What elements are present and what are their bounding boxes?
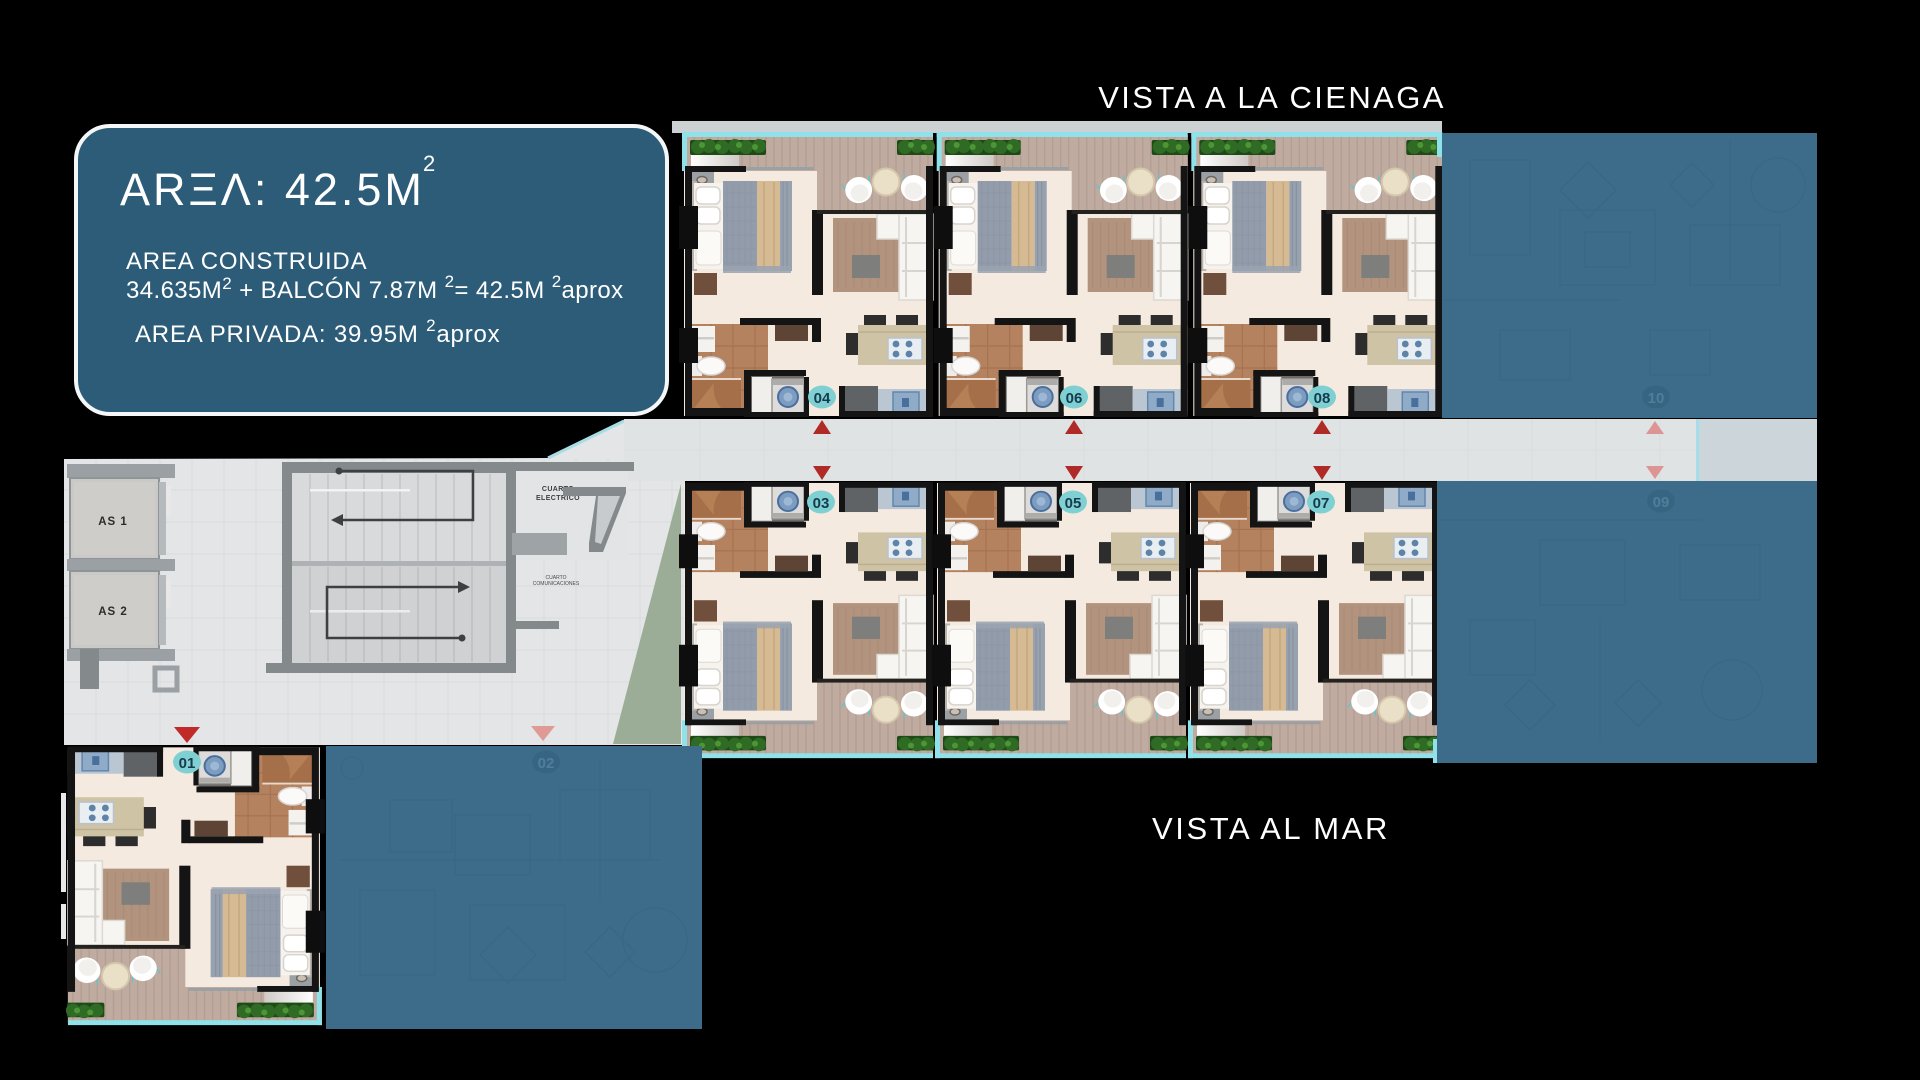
- svg-text:AREA PRIVADA: 39.95M 2aprox: AREA PRIVADA: 39.95M 2aprox: [135, 316, 500, 348]
- svg-text:34.635M2 + BALCÓN 7.87M 2= 42: 34.635M2 + BALCÓN 7.87M 2= 42.5M 2aprox: [126, 272, 624, 304]
- svg-text:03: 03: [813, 495, 830, 512]
- svg-text:AS 1: AS 1: [98, 516, 128, 528]
- svg-text:09: 09: [1653, 494, 1670, 511]
- svg-text:VISTA A LA CIENAGA: VISTA A LA CIENAGA: [1098, 80, 1446, 115]
- svg-text:AREA CONSTRUIDA: AREA CONSTRUIDA: [126, 248, 367, 275]
- svg-text:AS 2: AS 2: [98, 606, 128, 618]
- svg-text:06: 06: [1066, 390, 1083, 407]
- svg-text:05: 05: [1065, 495, 1082, 512]
- svg-text:04: 04: [814, 390, 831, 407]
- svg-text:08: 08: [1314, 390, 1331, 407]
- svg-text:02: 02: [538, 755, 555, 772]
- svg-text:10: 10: [1648, 390, 1665, 407]
- svg-text:07: 07: [1313, 495, 1330, 512]
- svg-text:ARΞΛ: 42.5M: ARΞΛ: 42.5M: [120, 164, 425, 215]
- svg-text:01: 01: [179, 755, 196, 772]
- svg-text:VISTA AL MAR: VISTA AL MAR: [1152, 811, 1390, 846]
- svg-text:2: 2: [423, 151, 435, 176]
- svg-text:ELECTRICO: ELECTRICO: [536, 495, 580, 502]
- svg-text:COMUNICACIONES: COMUNICACIONES: [533, 581, 580, 587]
